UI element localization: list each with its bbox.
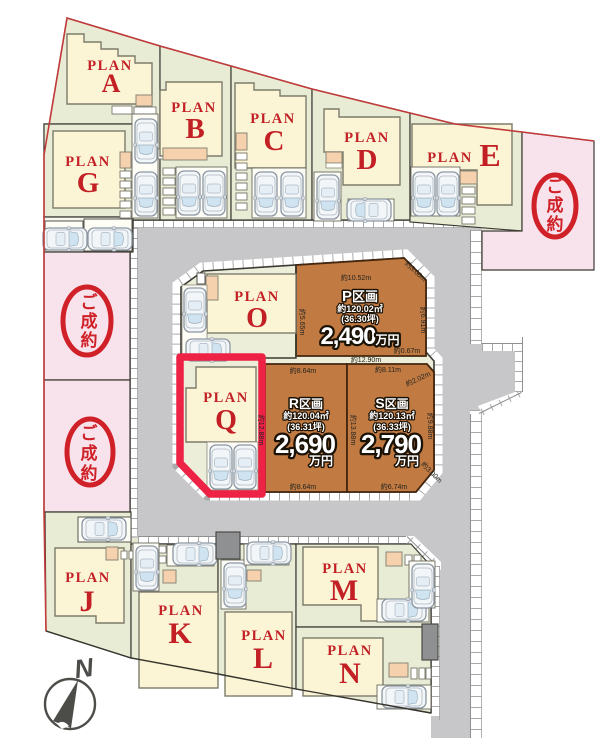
- svg-text:L: L: [253, 642, 273, 675]
- svg-text:約8.64m: 約8.64m: [290, 366, 317, 375]
- svg-text:約5.65m: 約5.65m: [298, 309, 307, 336]
- svg-text:成: 成: [547, 195, 564, 215]
- svg-text:A: A: [102, 69, 121, 98]
- svg-text:M: M: [330, 574, 358, 607]
- svg-text:約12.90m: 約12.90m: [351, 355, 382, 364]
- svg-text:約: 約: [81, 463, 98, 483]
- svg-text:ご: ご: [81, 292, 99, 312]
- svg-text:O: O: [246, 303, 268, 334]
- svg-text:G: G: [77, 167, 100, 199]
- svg-text:約8.11m: 約8.11m: [375, 365, 401, 374]
- svg-text:PLAN: PLAN: [427, 150, 472, 166]
- svg-text:万円: 万円: [308, 454, 333, 468]
- svg-text:C: C: [264, 125, 285, 157]
- svg-text:約120.13㎡: 約120.13㎡: [369, 410, 415, 421]
- svg-text:J: J: [80, 585, 95, 618]
- svg-text:万円: 万円: [394, 454, 419, 468]
- svg-text:S区画: S区画: [375, 395, 408, 411]
- svg-text:PLAN: PLAN: [203, 390, 248, 406]
- svg-text:P区画: P区画: [342, 288, 378, 305]
- svg-text:約13.88m: 約13.88m: [349, 415, 358, 446]
- svg-text:約9.88m: 約9.88m: [426, 413, 435, 440]
- svg-text:R区画: R区画: [289, 395, 323, 411]
- svg-text:成: 成: [81, 311, 98, 331]
- svg-text:約: 約: [81, 330, 98, 350]
- svg-text:PLAN: PLAN: [65, 570, 110, 586]
- svg-text:ご: ご: [547, 176, 565, 196]
- svg-text:約6.74m: 約6.74m: [381, 482, 408, 491]
- svg-text:B: B: [185, 113, 204, 145]
- svg-text:約10.52m: 約10.52m: [341, 273, 372, 282]
- svg-text:N: N: [339, 657, 361, 690]
- svg-text:約120.04㎡: 約120.04㎡: [283, 410, 329, 421]
- svg-text:約12.88m: 約12.88m: [257, 415, 266, 446]
- svg-text:成: 成: [81, 443, 98, 463]
- svg-text:E: E: [479, 137, 500, 173]
- svg-text:ご: ご: [81, 423, 99, 443]
- svg-text:Q: Q: [215, 405, 237, 436]
- svg-text:D: D: [357, 144, 378, 176]
- svg-text:約8.64m: 約8.64m: [290, 482, 317, 491]
- svg-text:K: K: [168, 617, 192, 650]
- svg-text:約6.91m: 約6.91m: [419, 307, 428, 334]
- svg-text:約: 約: [547, 214, 564, 234]
- svg-text:約0.67m: 約0.67m: [394, 346, 421, 355]
- svg-text:約120.02㎡: 約120.02㎡: [337, 303, 383, 314]
